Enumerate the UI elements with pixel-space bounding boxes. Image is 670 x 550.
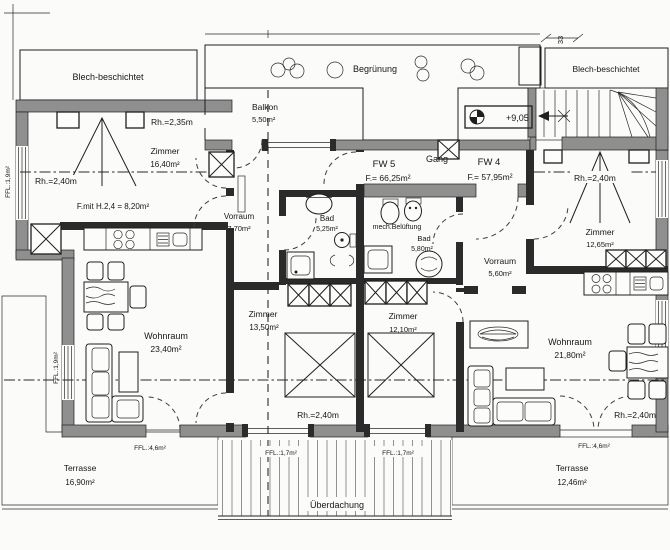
roof-garden-label: Begrünung [353, 64, 397, 74]
chair [87, 314, 103, 330]
fw4-wohnraum-name: Wohnraum [548, 337, 592, 347]
shaft-row-fw4 [365, 281, 427, 304]
floorplan-page: +9,05 Blech-beschichtet Begrünung Blech-… [0, 0, 670, 550]
dining-table [627, 347, 668, 378]
fw5-bad-area: 5,25m² [316, 226, 338, 233]
round-tub [416, 251, 442, 277]
fw4-zimmer-s-name: Zimmer [389, 311, 418, 321]
floor-plan-svg: +9,05 Blech-beschichtet Begrünung Blech-… [0, 0, 670, 550]
chair [108, 262, 124, 280]
fw4-wohnraum-area: 21,80m² [554, 350, 585, 360]
fw4-wohnraum-rh: Rh.=2,40m [614, 410, 656, 420]
fw5-terrasse-area: 16,90m² [65, 478, 95, 487]
fw5-area: F.= 66,25m² [365, 173, 410, 183]
fw5-wohnraum-area: 23,40m² [150, 344, 181, 354]
dining-table [84, 282, 128, 312]
kitchen-fw4 [584, 272, 668, 295]
fw5-zimmer-nw-rh-top: Rh.=2,35m [151, 117, 193, 127]
ffl-19-bottom: FFL.:1,9m² [53, 351, 60, 384]
sideboard-plant-fw4 [470, 321, 528, 348]
chair [130, 286, 146, 308]
roof-label-right: Blech-beschichtet [572, 64, 640, 74]
fw4-zimmer-ne-name: Zimmer [586, 227, 615, 237]
wardrobe-fw4 [606, 250, 666, 268]
balkon-area: 5,50m² [252, 115, 276, 124]
fw5-terrasse-name: Terrasse [64, 463, 97, 473]
ffl-19-top: FFL.:1,9m² [5, 165, 12, 198]
shaft-kitchen-left [31, 224, 61, 254]
fw4-bad-area: 5,80m² [411, 246, 433, 253]
balkon-name: Balkon [252, 102, 278, 112]
washbasin [405, 201, 422, 221]
coffee-table [506, 368, 544, 390]
fw4-terrasse-name: Terrasse [556, 463, 589, 473]
ffl-17-left: FFL.:1,7m² [265, 450, 298, 457]
dim-33: 33 [556, 36, 565, 44]
fw5-zimmer-s-rh: Rh.=2,40m [297, 410, 339, 420]
fw4-vorraum-area: 5,60m² [488, 269, 512, 278]
shaft-vorraum-fw5 [209, 152, 234, 177]
fw4-vorraum-name: Vorraum [484, 256, 516, 266]
fw5-vorraum-area: 7,70m² [227, 224, 251, 233]
coffee-table [119, 352, 138, 392]
wc [381, 202, 399, 224]
ueberdachung-label: Überdachung [310, 500, 364, 510]
gang-label: Gang [426, 154, 448, 164]
shaft-row-fw5 [288, 284, 351, 306]
ffl-17-right: FFL.:1,7m² [382, 450, 415, 457]
fw5-zimmer-nw-name: Zimmer [151, 146, 180, 156]
fw5-wohnraum-name: Wohnraum [144, 331, 188, 341]
level-value: +9,05 [506, 113, 529, 123]
mech-belueftung: mech.Belüftung [373, 224, 422, 231]
chair [87, 262, 103, 280]
chair [108, 314, 124, 330]
fw4-zimmer-ne-area: 12,65m² [586, 240, 614, 249]
ffl-46-right: FFL.:4,6m² [578, 443, 611, 450]
roof-label-left: Blech-beschichtet [72, 72, 144, 82]
fw5-zimmer-nw-area: 16,40m² [150, 160, 180, 169]
fw5-f-mit: F.mit H.2,4 = 8,20m² [77, 202, 150, 211]
fw5-zimmer-nw-rh-mid: Rh.=2,40m [35, 176, 77, 186]
fw5-zimmer-s-name: Zimmer [249, 309, 278, 319]
fw4-zimmer-ne-rh: Rh.=2,40m [574, 173, 616, 183]
kitchen-fw5 [84, 228, 202, 250]
fw5-zimmer-s-area: 13,50m² [249, 323, 279, 332]
fw4-id: FW 4 [478, 157, 501, 168]
fw4-zimmer-s-area: 12,10m² [389, 325, 417, 334]
washbasin [306, 194, 332, 214]
fw4-terrasse-area: 12,46m² [557, 478, 587, 487]
fw4-area: F.= 57,95m² [467, 172, 512, 182]
fw4-bad-name: Bad [417, 234, 430, 243]
fw5-vorraum-name: Vorraum [224, 212, 255, 221]
fw5-bad-name: Bad [320, 214, 334, 223]
ffl-46-left: FFL.:4,6m² [134, 445, 167, 452]
fw5-id: FW 5 [373, 159, 396, 170]
